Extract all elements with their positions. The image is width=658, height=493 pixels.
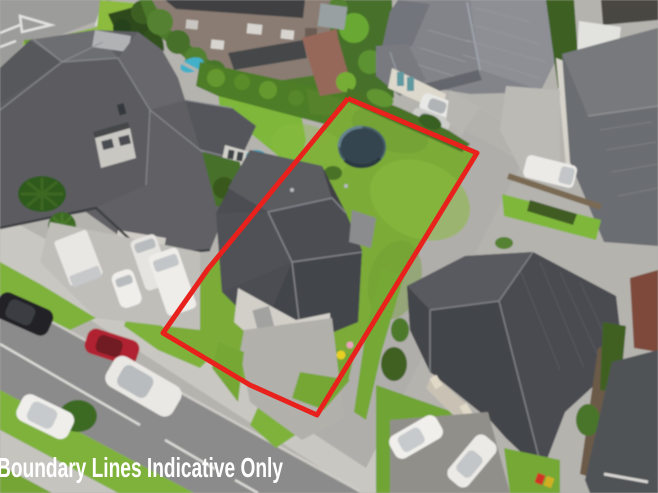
svg-text:Boundary Lines Indicative Only: Boundary Lines Indicative Only — [0, 452, 283, 483]
